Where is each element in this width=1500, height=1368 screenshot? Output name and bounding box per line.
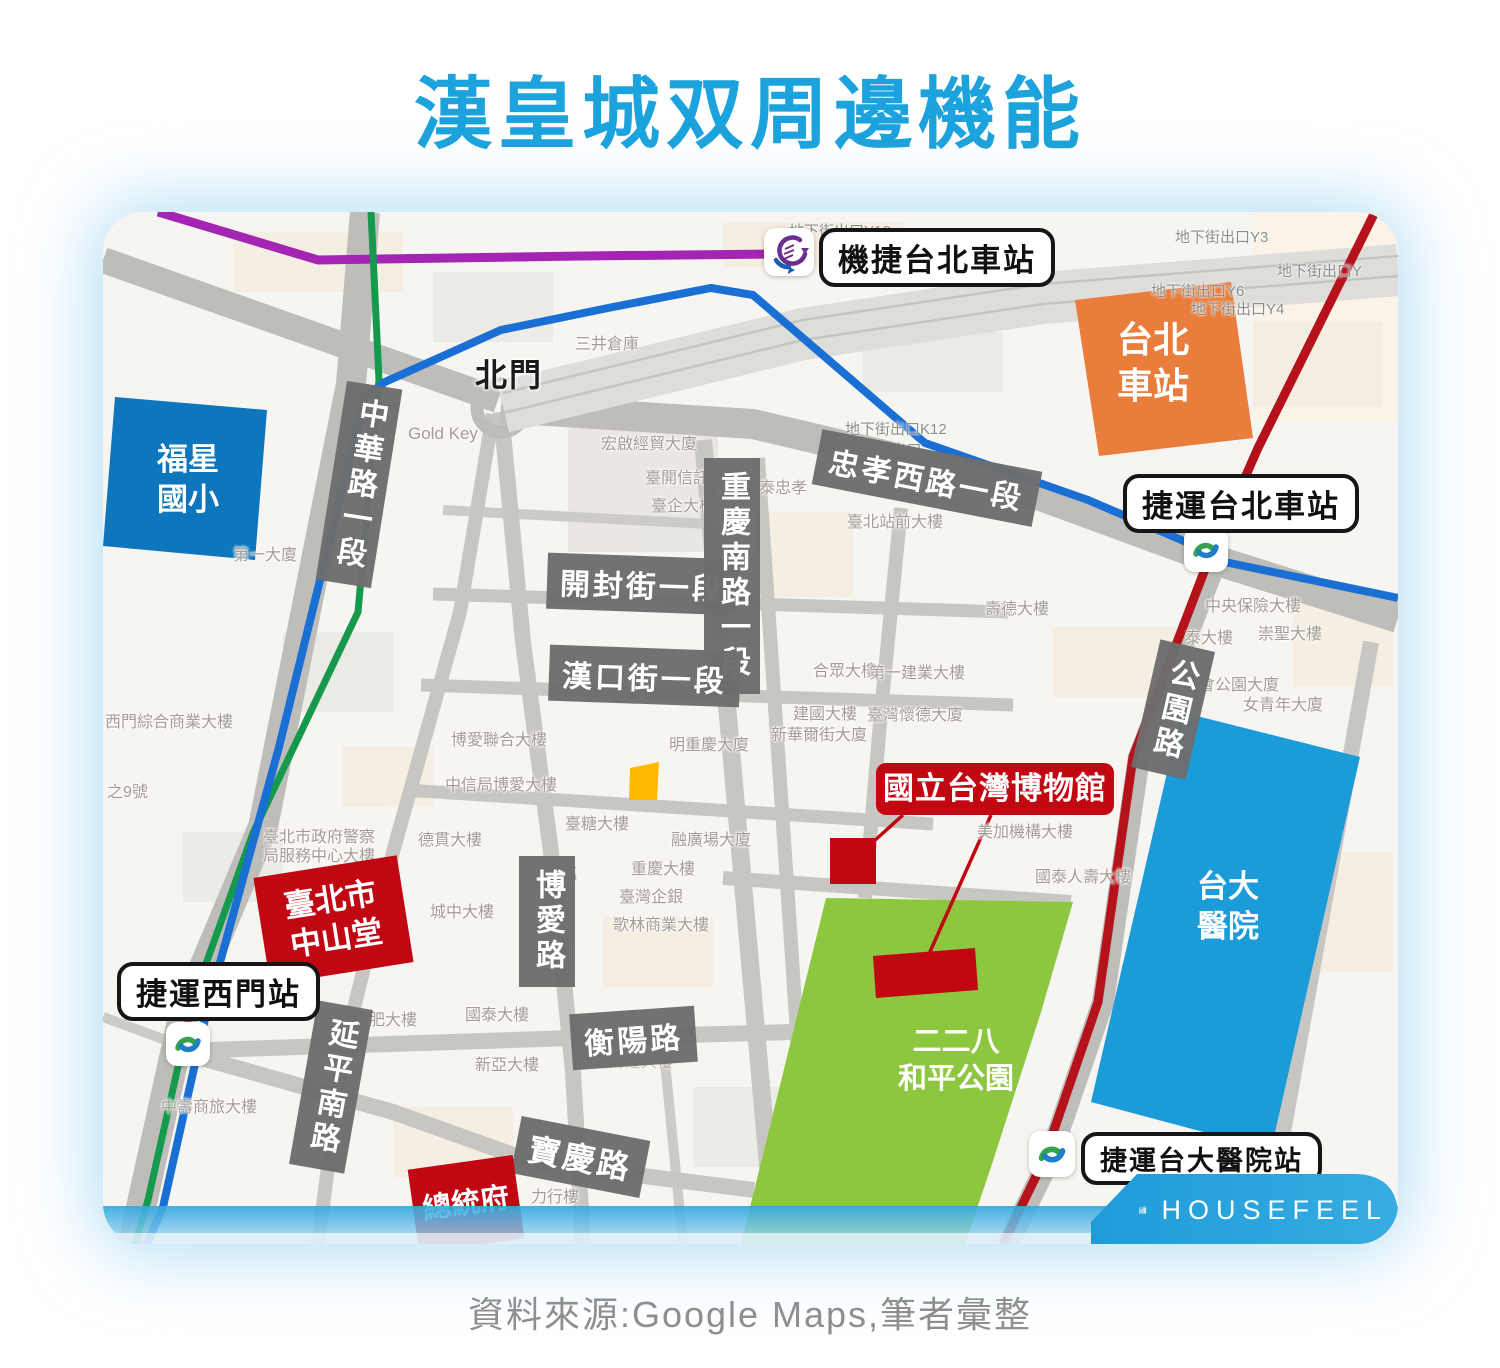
building-label: 第一建業大樓 (869, 659, 965, 683)
building-label: 臺灣企銀 (619, 883, 683, 907)
page-title: 漢皇城双周邊機能 (0, 52, 1500, 164)
building-label: 中央保險大樓 (1205, 592, 1301, 616)
poi-taipei-main-station: 台北 車站 (1078, 317, 1228, 409)
road-label-hankou: 漢口街一段 (548, 645, 741, 708)
building-label: 力行樓 (531, 1183, 579, 1207)
building-label: 城中大樓 (430, 898, 494, 922)
exit-label: 地下街出口Y3 (1175, 226, 1268, 247)
poi-fuxing-elementary: 福星 國小 (123, 440, 253, 519)
building-label: 壽德大樓 (985, 595, 1049, 619)
metro-icon (166, 1022, 210, 1066)
housefeel-wordmark: HOUSEFEEL (1161, 1195, 1388, 1226)
building-label: 國泰人壽大樓 (1035, 863, 1131, 887)
station-pill-mrt-taipei-main: 捷運台北車站 (1123, 474, 1359, 533)
building-label: 宏啟經貿大廈 (601, 430, 697, 454)
building-label: 之9號 (107, 778, 148, 802)
building-label: 融廣場大廈 (671, 826, 751, 850)
building-label: 第一大廈 (233, 541, 297, 565)
building-label: 西門綜合商業大樓 (105, 708, 233, 732)
building-label: 新亞大樓 (475, 1051, 539, 1075)
building-label: 重慶大樓 (631, 855, 695, 879)
building-label: 臺糖大樓 (565, 810, 629, 834)
building-label: 明重慶大廈 (669, 731, 749, 755)
exit-label: 地下街出口Y (1277, 260, 1362, 281)
airport-mrt-icon (764, 228, 814, 276)
building-logo-icon (1138, 1191, 1147, 1229)
poi-ntu-hospital: 台大 醫院 (1163, 867, 1293, 946)
building-label: 歌林商業大樓 (613, 911, 709, 935)
building-label: 崇聖大樓 (1258, 620, 1322, 644)
map-canvas: 三井倉庫 Gold Key 宏啟經貿大廈 臺開信託大樓 臺企大樓 基泰忠孝 臺北… (103, 212, 1398, 1244)
building-label: 德貫大樓 (418, 826, 482, 850)
road-label-hengyang: 衡陽路 (569, 1006, 698, 1071)
building-label: 女青年大廈 (1243, 691, 1323, 715)
building-label: 三井倉庫 (575, 330, 639, 354)
source-note: 資料來源:Google Maps,筆者彙整 (0, 1286, 1500, 1338)
building-label: 中信局博愛大樓 (445, 771, 557, 795)
station-pill-airport-mrt-taipei: 機捷台北車站 (819, 228, 1055, 287)
infographic-page: 漢皇城双周邊機能 (0, 0, 1500, 1368)
station-pill-mrt-ximen: 捷運西門站 (117, 962, 320, 1021)
building-label: 美加機構大樓 (977, 818, 1073, 842)
road-label-boai: 博愛路 (519, 856, 575, 987)
building-label: 臺灣懷德大廈 (867, 701, 963, 725)
building-label: 臺北站前大樓 (847, 508, 943, 532)
brand-logo: HOUSEFEEL (1138, 1184, 1388, 1236)
north-gate-label: 北門 (475, 350, 543, 396)
exit-label: 地下街出口Y4 (1191, 298, 1284, 319)
metro-icon (1029, 1131, 1075, 1177)
poi-228-peace-park: 二二八 和平公園 (871, 1024, 1041, 1098)
building-label: 新華爾街大廈 (771, 721, 867, 745)
building-label: 博愛聯合大樓 (451, 726, 547, 750)
station-pill-mrt-ntu-hospital: 捷運台大醫院站 (1081, 1132, 1322, 1185)
building-label: 中壽商旅大樓 (161, 1093, 257, 1117)
building-label: 合眾大樓 (813, 657, 877, 681)
metro-icon (1184, 528, 1228, 572)
building-label: 泰大樓 (1185, 624, 1233, 648)
building-label: Gold Key (408, 424, 478, 444)
building-label: 國泰大樓 (465, 1001, 529, 1025)
poi-national-taiwan-museum-label: 國立台灣博物館 (876, 763, 1114, 815)
